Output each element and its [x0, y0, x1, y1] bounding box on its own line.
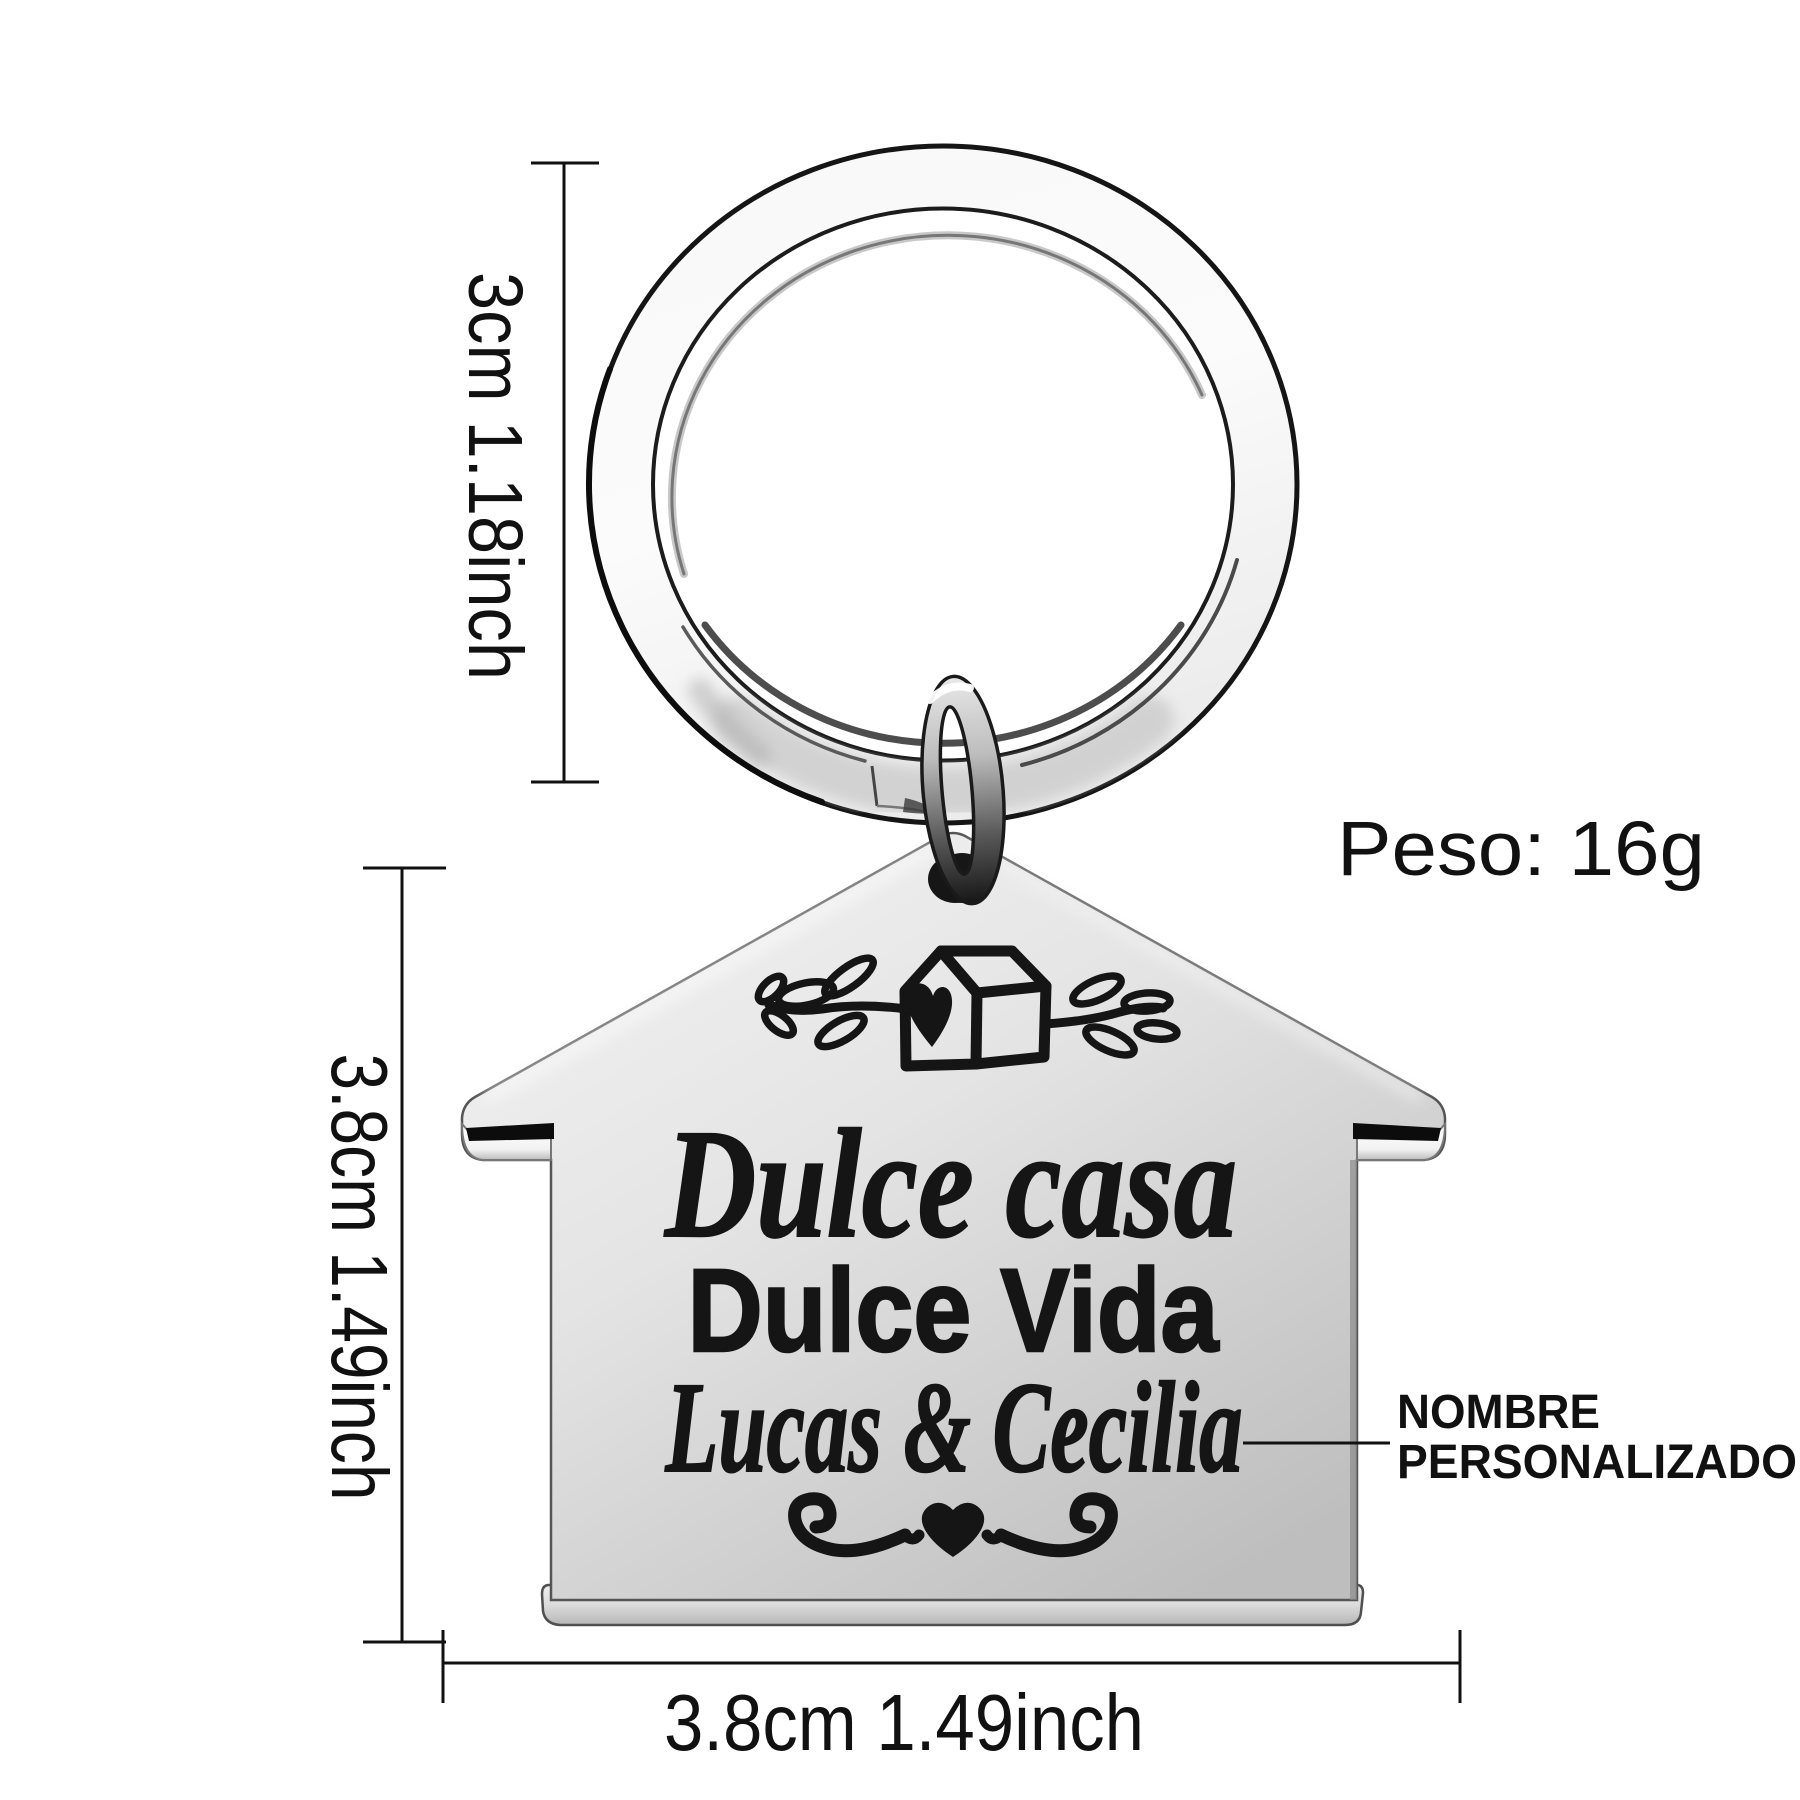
svg-text:Lucas & Cecilia: Lucas & Cecilia — [665, 1356, 1243, 1500]
svg-text:NOMBRE: NOMBRE — [1397, 1386, 1600, 1439]
svg-text:3.8cm 1.49inch: 3.8cm 1.49inch — [664, 1678, 1144, 1767]
svg-text:Peso: 16g: Peso: 16g — [1337, 806, 1705, 892]
svg-text:3.8cm 1.49inch: 3.8cm 1.49inch — [315, 1054, 404, 1501]
svg-text:PERSONALIZADO: PERSONALIZADO — [1397, 1436, 1797, 1489]
svg-text:3cm 1.18inch: 3cm 1.18inch — [452, 272, 538, 680]
